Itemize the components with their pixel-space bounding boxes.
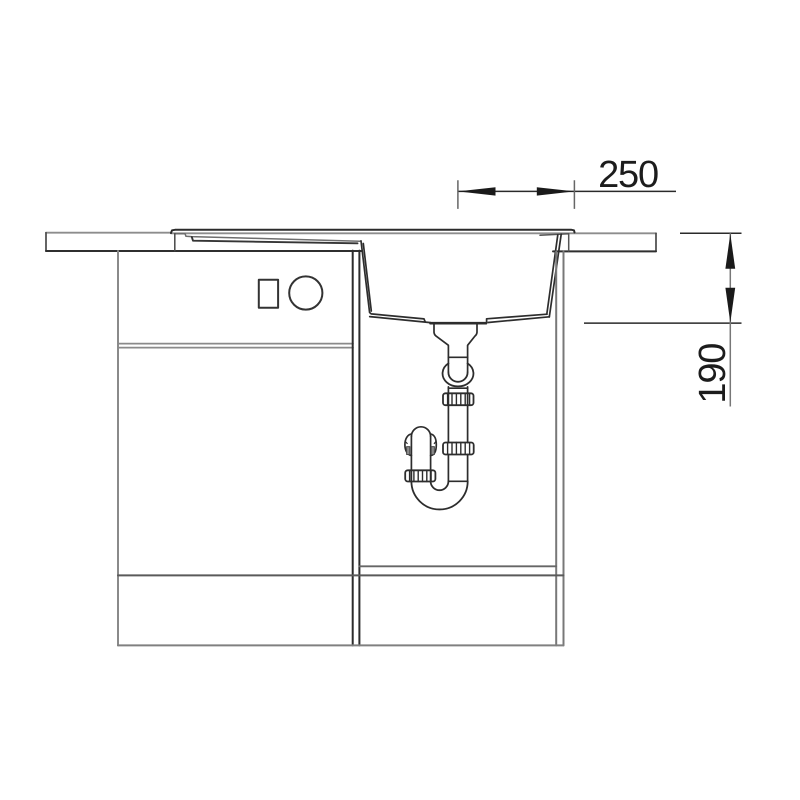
- svg-text:190: 190: [692, 344, 734, 404]
- svg-text:250: 250: [598, 154, 658, 196]
